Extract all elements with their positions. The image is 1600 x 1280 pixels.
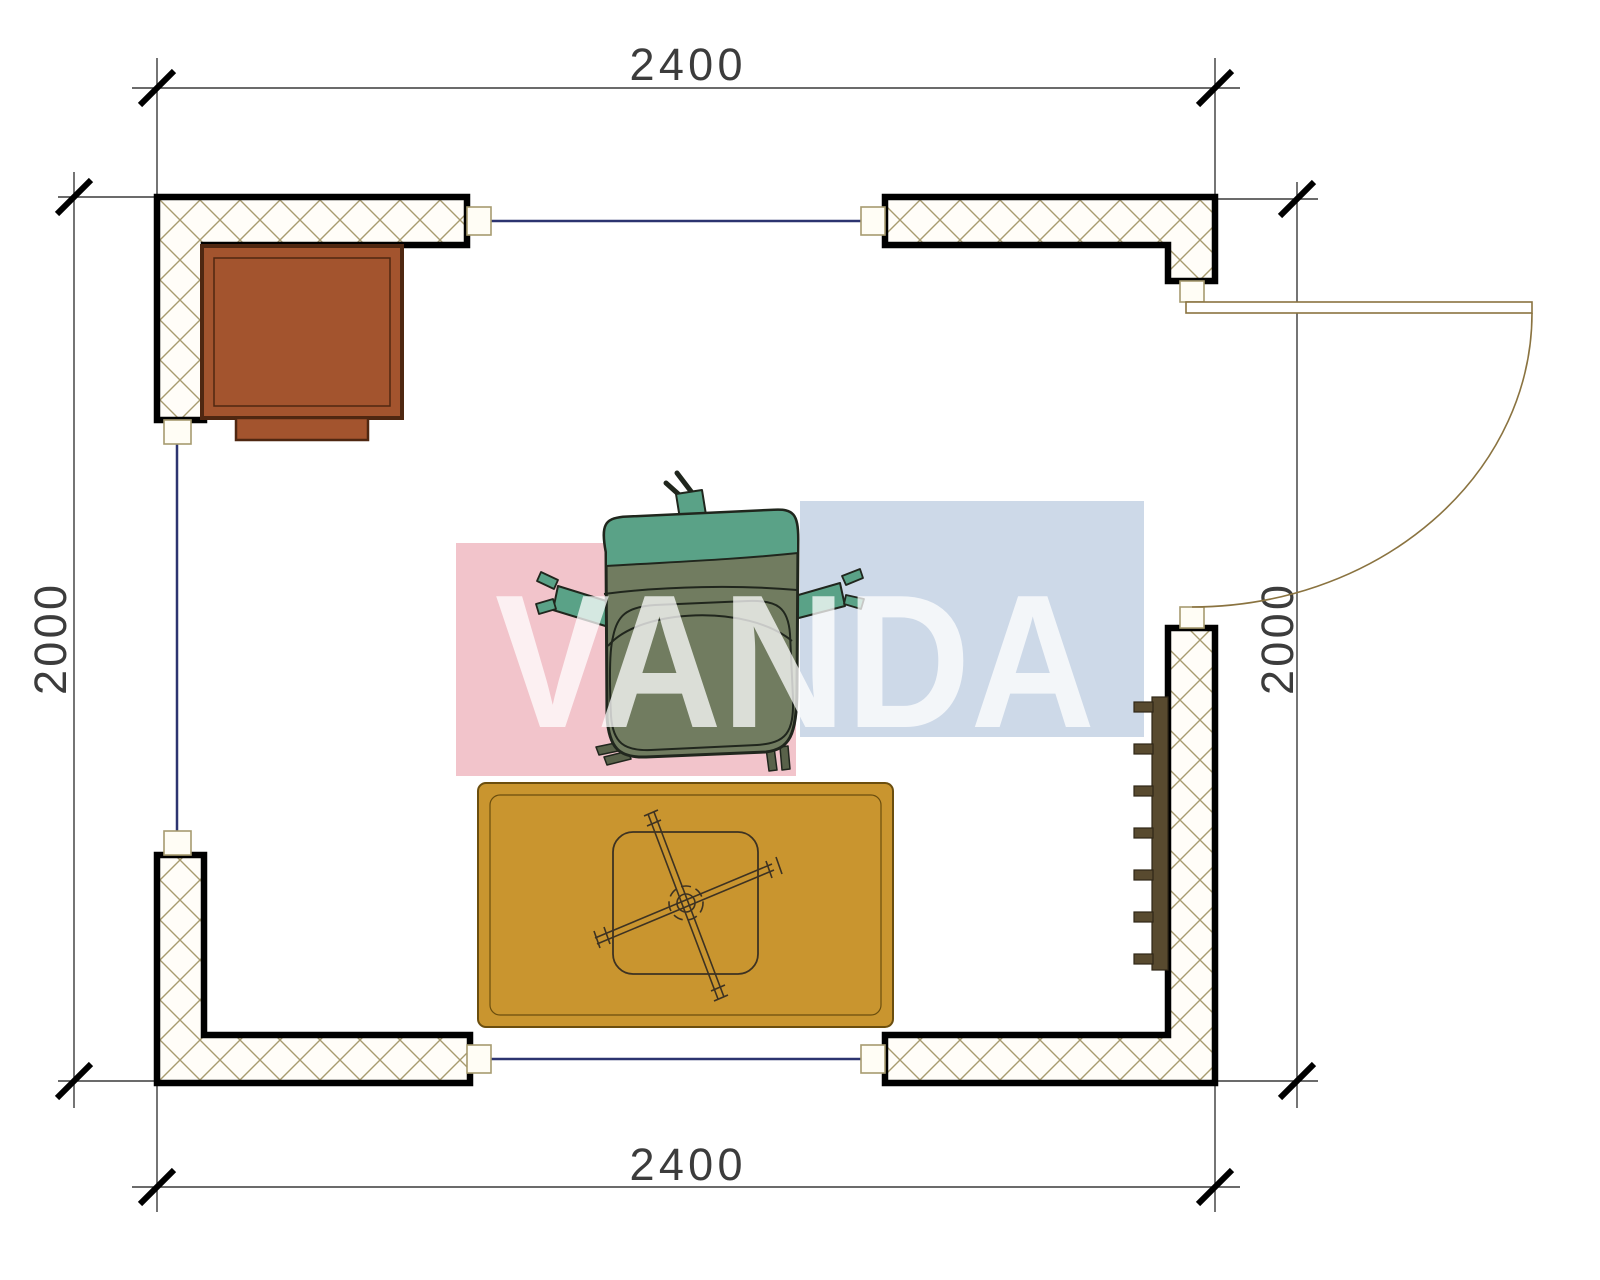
radiator [1134,697,1168,970]
radiator-fin [1134,954,1153,964]
radiator-fin [1134,702,1153,712]
jamb-door-hinge [1180,281,1204,302]
radiator-fin [1134,828,1153,838]
dim-label-top: 2400 [630,39,745,90]
wall-top-right [885,197,1215,281]
dim-label-right: 2000 [1252,583,1303,695]
dim-label-left: 2000 [25,583,76,695]
rug [478,783,893,1027]
jamb-left-window-top [164,420,191,444]
radiator-fin [1134,870,1153,880]
desk-top [202,246,402,418]
jamb-bottom-window-right [861,1045,885,1073]
wall-bottom-left [157,855,470,1083]
dim-label-bottom: 2400 [630,1139,745,1190]
radiator-fin [1134,744,1153,754]
door-swing-arc [1192,313,1532,607]
floor-plan-drawing: 2400 2400 2000 2000 [0,0,1600,1280]
watermark-text: VANDA [495,556,1095,768]
rug-and-table [478,783,893,1027]
jamb-door-latch [1180,607,1204,628]
radiator-bar [1152,697,1168,970]
door [1186,302,1532,607]
jamb-left-window-bottom [164,831,191,855]
jamb-top-window-left [467,207,491,235]
radiator-fin [1134,786,1153,796]
desk [202,246,402,440]
door-leaf [1186,302,1532,313]
jamb-top-window-right [861,207,885,235]
dim-extension-top [157,58,1215,197]
desk-drawer-tab [236,418,368,440]
radiator-fin [1134,912,1153,922]
jamb-bottom-window-left [467,1045,491,1073]
floor-plan-page: 2400 2400 2000 2000 [0,0,1600,1280]
dim-extension-bottom [157,1083,1215,1212]
